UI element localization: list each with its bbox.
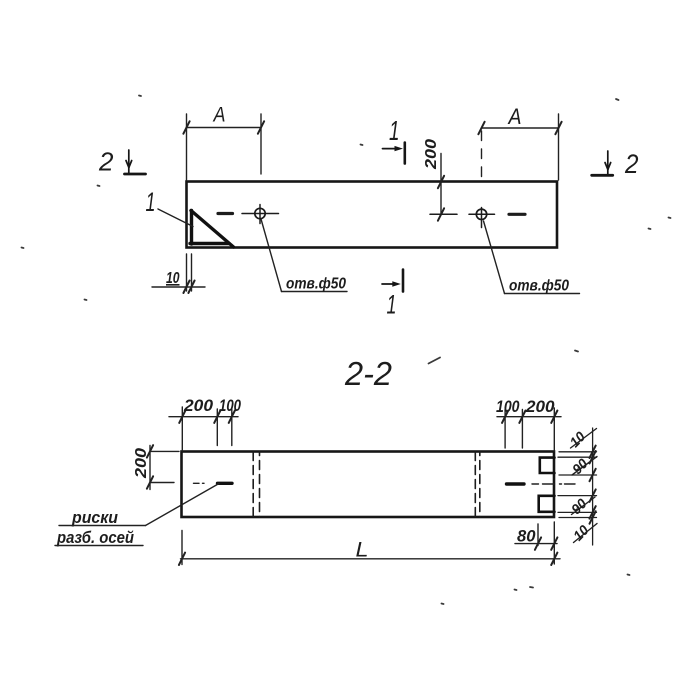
svg-text:2: 2 xyxy=(624,149,638,179)
svg-text:1: 1 xyxy=(387,290,397,320)
svg-text:100: 100 xyxy=(219,396,241,415)
svg-text:1: 1 xyxy=(389,115,400,146)
svg-text:90: 90 xyxy=(569,455,591,477)
svg-text:200: 200 xyxy=(525,397,555,416)
svg-text:90: 90 xyxy=(568,495,590,517)
svg-text:2-2: 2-2 xyxy=(344,355,392,392)
svg-text:A: A xyxy=(507,104,522,129)
svg-text:риски: риски xyxy=(71,508,118,527)
svg-text:10: 10 xyxy=(570,522,592,544)
svg-text:отв.ф50: отв.ф50 xyxy=(286,276,346,293)
svg-text:10: 10 xyxy=(166,270,180,287)
svg-text:A: A xyxy=(212,104,226,127)
svg-text:отв.ф50: отв.ф50 xyxy=(509,278,569,295)
svg-text:2: 2 xyxy=(98,147,114,177)
svg-text:100: 100 xyxy=(496,397,520,416)
svg-text:разб. осей: разб. осей xyxy=(56,528,134,547)
svg-text:1: 1 xyxy=(146,187,156,217)
svg-text:80: 80 xyxy=(517,527,536,546)
svg-text:L: L xyxy=(356,539,369,562)
svg-text:200: 200 xyxy=(423,139,440,170)
svg-text:200: 200 xyxy=(183,396,214,415)
svg-text:10: 10 xyxy=(566,428,588,450)
svg-text:200: 200 xyxy=(133,448,150,479)
